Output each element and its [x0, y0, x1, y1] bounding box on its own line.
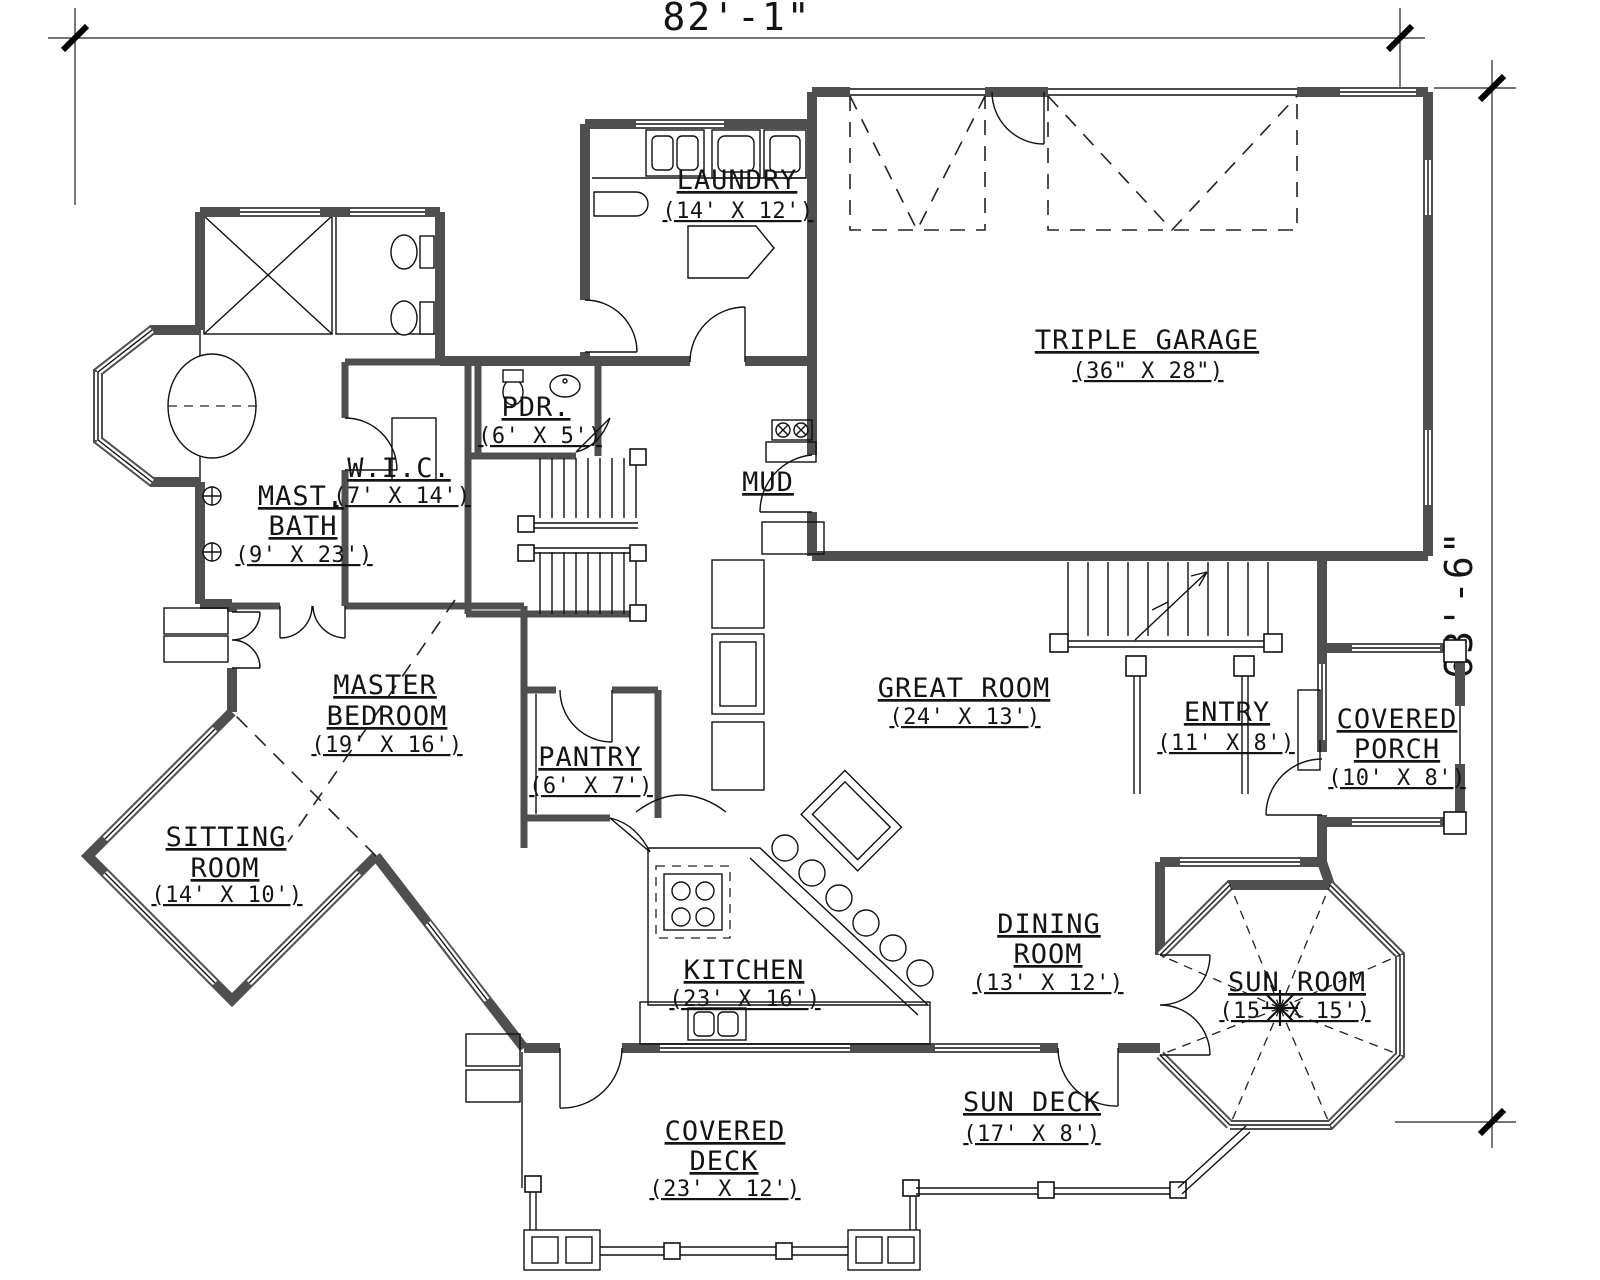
- basement-stair-treads: [1068, 562, 1268, 636]
- kitchen-deck-door: [560, 1048, 622, 1108]
- room-label-covered-deck-2: DECK: [689, 1146, 758, 1177]
- room-label-mast-bath-2: BATH: [268, 511, 337, 542]
- room-dims-master-bedroom: (19' X 16'): [311, 733, 462, 758]
- room-dims-garage: (36" X 28"): [1072, 359, 1223, 384]
- room-label-covered-porch-1: COVERED: [1337, 704, 1458, 735]
- room-dims-pdr: (6' X 5'): [478, 424, 602, 449]
- room-dims-dining: (13' X 12'): [972, 971, 1123, 996]
- floor-plan-svg: 82'-1" 63'-6": [0, 0, 1600, 1280]
- room-dims-pantry: (6' X 7'): [529, 774, 653, 799]
- room-label-master-bedroom-1: MASTER: [333, 670, 437, 701]
- stair-treads-up: [540, 458, 636, 518]
- room-dims-sitting: (14' X 10'): [151, 883, 302, 908]
- rail-post: [1038, 1182, 1054, 1198]
- deck-pier: [848, 1230, 920, 1270]
- deck-step: [466, 1070, 520, 1102]
- shower-pan-x: [204, 216, 332, 334]
- bar-stool: [799, 860, 825, 886]
- rail-post: [525, 1176, 541, 1192]
- laundry-mud-door: [690, 307, 745, 362]
- room-label-mud: MUD: [742, 467, 794, 498]
- room-dims-covered-deck: (23' X 12'): [649, 1177, 800, 1202]
- room-dims-great-room: (24' X 13'): [889, 705, 1040, 730]
- toilet-2: [391, 301, 417, 335]
- room-label-dining-2: ROOM: [1013, 939, 1082, 970]
- room-label-sitting-1: SITTING: [166, 822, 287, 853]
- room-dims-sun-room: (15' X 15'): [1219, 999, 1370, 1024]
- floor-plan-sheet: 82'-1" 63'-6": [0, 0, 1600, 1280]
- room-label-pdr: PDR.: [501, 392, 570, 423]
- room-label-wic: W.I.C.: [347, 453, 451, 484]
- room-label-entry: ENTRY: [1184, 697, 1270, 728]
- deck-rail-south: [600, 1247, 848, 1255]
- front-door: [1266, 759, 1322, 815]
- bedroom-exterior-door: [232, 612, 260, 668]
- rail-post: [1170, 1182, 1186, 1198]
- room-label-kitchen: KITCHEN: [684, 955, 805, 986]
- room-label-sun-room: SUN ROOM: [1228, 967, 1366, 998]
- bar-stool: [772, 835, 798, 861]
- entry-column: [1234, 656, 1254, 676]
- porch-post: [1444, 812, 1466, 834]
- pantry-door: [560, 690, 612, 742]
- room-dims-wic: (7' X 14'): [333, 484, 470, 509]
- sofa: [801, 771, 901, 871]
- porch-post: [1444, 640, 1466, 662]
- stair-rail: [530, 523, 638, 553]
- fireplace-lower: [712, 722, 764, 790]
- basement-stair-rail: [1058, 641, 1272, 647]
- basement-stair: [1050, 562, 1282, 652]
- garage-man-door-swing: [992, 92, 1044, 144]
- single-garage-door-dashed: [850, 96, 985, 230]
- bath-tile-floors: [98, 216, 436, 482]
- room-dims-kitchen: (23' X 16'): [669, 987, 820, 1012]
- bedroom-hall-double-door: [280, 606, 345, 638]
- rail-post: [776, 1243, 792, 1259]
- mud-bench: [772, 420, 812, 440]
- room-label-sun-deck: SUN DECK: [963, 1087, 1101, 1118]
- room-dims-covered-porch: (10' X 8'): [1328, 766, 1465, 791]
- room-label-great-room: GREAT ROOM: [878, 673, 1051, 704]
- room-label-sitting-2: ROOM: [190, 853, 259, 884]
- laundry-door: [585, 300, 637, 352]
- bar-stool: [826, 885, 852, 911]
- double-garage-door-dashed: [1048, 96, 1297, 230]
- room-label-dining-1: DINING: [997, 909, 1101, 940]
- overall-width-dimension: 82'-1": [662, 0, 811, 39]
- room-label-master-bedroom-2: BEDROOM: [327, 701, 448, 732]
- deck-railings: [466, 1034, 1250, 1270]
- folding-table: [688, 226, 774, 278]
- bar-stool: [853, 910, 879, 936]
- entry-closet: [1298, 690, 1320, 770]
- sun-room-double-door: [1160, 955, 1210, 1055]
- rail-post: [664, 1243, 680, 1259]
- garage-doors: [850, 89, 1297, 230]
- room-dims-sun-deck: (17' X 8'): [963, 1122, 1100, 1147]
- ironing-board: [594, 192, 648, 216]
- bathtub: [168, 354, 256, 458]
- main-stair: [518, 449, 646, 621]
- room-dims-laundry: (14' X 12'): [662, 199, 813, 224]
- pantry-corner-door: [610, 818, 650, 852]
- room-dims-mast-bath: (9' X 23'): [235, 543, 372, 568]
- room-label-laundry: LAUNDRY: [677, 165, 798, 196]
- room-dims-entry: (11' X 8'): [1157, 731, 1294, 756]
- stair-direction-arrow: [1135, 572, 1207, 640]
- stair-treads-down: [540, 552, 636, 614]
- kitchen-diagonal-window: [428, 923, 487, 1000]
- deck-pier: [524, 1230, 600, 1270]
- room-label-covered-deck-1: COVERED: [665, 1116, 786, 1147]
- bar-stool: [907, 960, 933, 986]
- room-label-covered-porch-2: PORCH: [1354, 734, 1440, 765]
- sun-deck-rail-diagonal: [1178, 1126, 1250, 1194]
- room-label-garage: TRIPLE GARAGE: [1035, 325, 1259, 356]
- toilet-1: [391, 235, 417, 269]
- room-label-mast-bath-1: MAST.: [258, 481, 344, 512]
- entry-column: [1126, 656, 1146, 676]
- room-label-pantry: PANTRY: [538, 742, 642, 773]
- bar-stool: [880, 935, 906, 961]
- fireplace-upper: [712, 560, 764, 628]
